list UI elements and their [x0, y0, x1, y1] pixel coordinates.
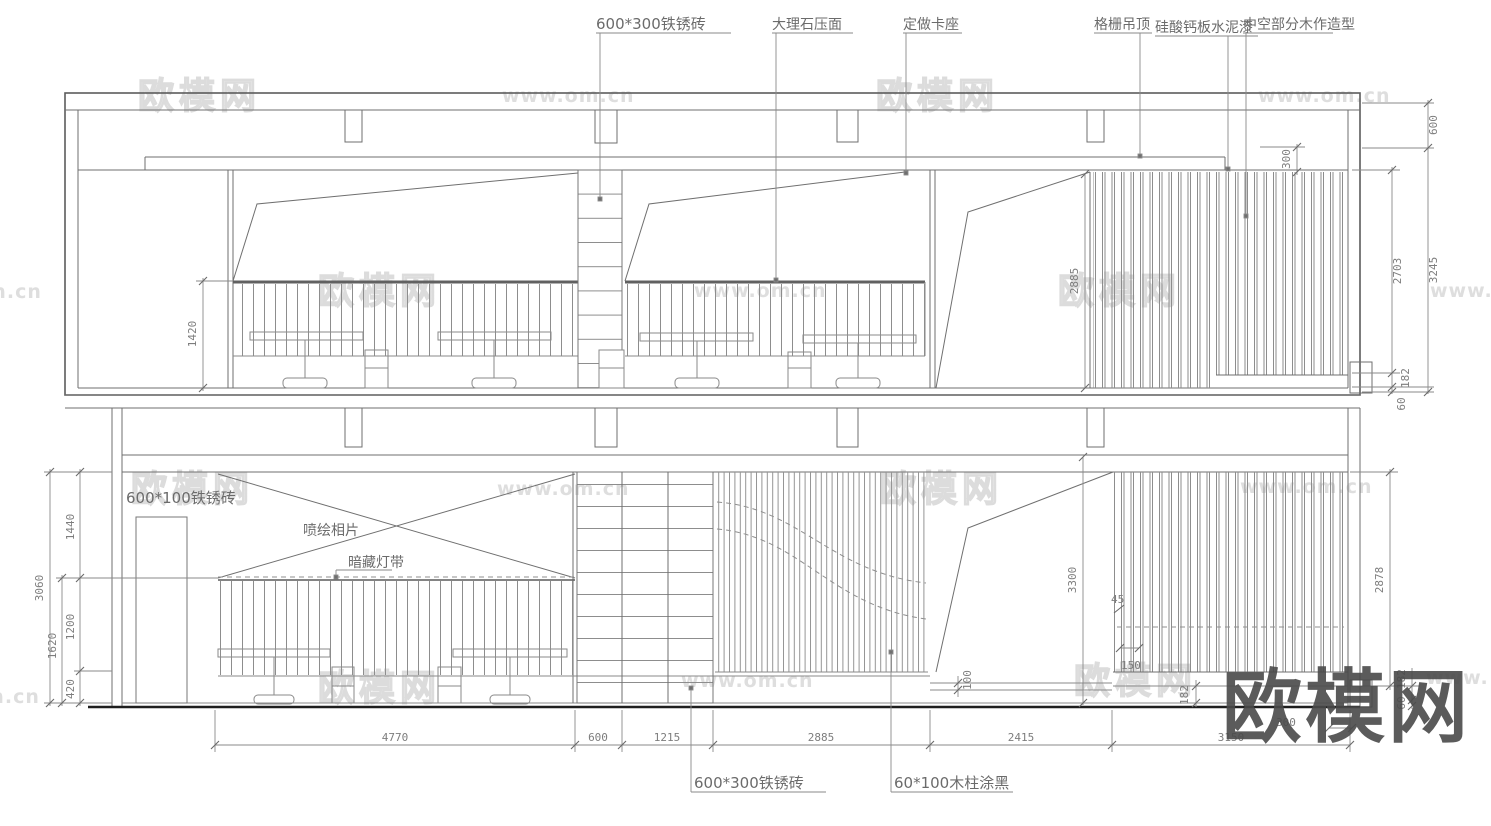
wood-post-screen [715, 472, 928, 672]
callout-hidden-light-strip: 暗藏灯带 [348, 555, 404, 571]
floor-band [65, 395, 1360, 447]
callout-custom-booth: 定做卡座 [903, 17, 959, 33]
cad-canvas: 欧模网 www.om.cn 欧模网 www.om.cn om.cn 欧模网 ww… [0, 0, 1491, 826]
callout-hollow-wood-feature: 中空部分木作造型 [1243, 17, 1355, 33]
column-pedestal [599, 350, 624, 388]
dim-3300: 3300 [1066, 567, 1079, 594]
dim-2878: 2878 [1373, 567, 1386, 594]
wall-tab [1350, 362, 1372, 393]
table-base [283, 378, 327, 388]
dim-3245: 3245 [1427, 257, 1440, 284]
callout-inkjet-photo: 喷绘相片 [303, 523, 359, 539]
watermark-brand: 欧模网 [876, 76, 999, 117]
brick-column [578, 170, 624, 388]
dim-182c: 182 [1178, 685, 1191, 705]
dim-1420: 1420 [186, 321, 199, 348]
dim-100: 100 [961, 670, 974, 690]
upper-elevation [65, 93, 1372, 395]
dim-1215: 1215 [654, 731, 681, 744]
dim-2703: 2703 [1391, 258, 1404, 285]
column-tab [1087, 408, 1104, 447]
callout-grille-ceiling: 格栅吊顶 [1094, 17, 1150, 33]
callout-wood-post-black: 60*100木柱涂黑 [894, 774, 1009, 792]
dim-2415: 2415 [1008, 731, 1035, 744]
dim-1620: 1620 [46, 633, 59, 660]
lower-elevation [88, 408, 1372, 707]
callout-brick-600x300: 600*300铁锈砖 [596, 15, 706, 33]
dim-182: 182 [1399, 368, 1412, 388]
column-tab [345, 408, 362, 447]
brick-grid-wall [577, 472, 713, 703]
dim-4770: 4770 [382, 731, 409, 744]
dim-1440: 1440 [64, 514, 77, 541]
dim-2885b: 2885 [808, 731, 835, 744]
awning-profile [625, 172, 905, 281]
watermark-site: www.om.cn [1258, 85, 1391, 107]
watermark-corner-brand: 欧模网 [1222, 661, 1471, 754]
dim-3060: 3060 [33, 575, 46, 602]
watermark-brand: 欧模网 [138, 76, 261, 117]
callout-brick-600x100: 600*100铁锈砖 [126, 489, 236, 507]
elevation-drawing: 欧模网 www.om.cn 欧模网 www.om.cn om.cn 欧模网 ww… [0, 0, 1491, 826]
brick-pillar [136, 517, 187, 703]
dim-600: 600 [1427, 115, 1440, 135]
watermark-site-short: om.cn [0, 686, 40, 708]
ceiling-notch [345, 110, 362, 142]
dim-600b: 600 [588, 731, 608, 744]
dim-2885: 2885 [1068, 268, 1081, 295]
dim-45: 45 [1111, 593, 1124, 606]
stool [788, 352, 811, 388]
dim-60: 60 [1395, 397, 1408, 410]
baluster-panel [218, 581, 575, 675]
callout-marble-counter: 大理石压面 [772, 17, 842, 33]
dim-1200: 1200 [64, 614, 77, 641]
watermark-site-short: om.cn [0, 281, 42, 303]
table-base [472, 378, 516, 388]
ceiling-notch [1087, 110, 1104, 142]
baluster-panel [233, 284, 578, 356]
awning-profile [233, 173, 578, 281]
baluster-panel [625, 284, 925, 356]
callout-brick-600x300-b: 600*300铁锈砖 [694, 774, 804, 792]
upper-slat-panel [1093, 172, 1348, 388]
watermark-site: www.om.cn [502, 85, 635, 107]
ceiling-notch [595, 110, 617, 143]
table-base [836, 378, 880, 388]
left-1420-dim [196, 277, 233, 392]
lower-slat-panel [1113, 472, 1348, 686]
light-strip-leader [334, 570, 392, 579]
dim-300: 300 [1280, 149, 1293, 169]
dim-420: 420 [64, 679, 77, 699]
column-tab [837, 408, 858, 447]
callout-silicate-cement-paint: 硅酸钙板水泥漆 [1155, 20, 1253, 36]
column-tab [595, 408, 617, 447]
ceiling-notch [837, 110, 858, 142]
table-base [675, 378, 719, 388]
dim-150: 150 [1121, 659, 1141, 672]
upper-right-dims [1352, 99, 1434, 396]
